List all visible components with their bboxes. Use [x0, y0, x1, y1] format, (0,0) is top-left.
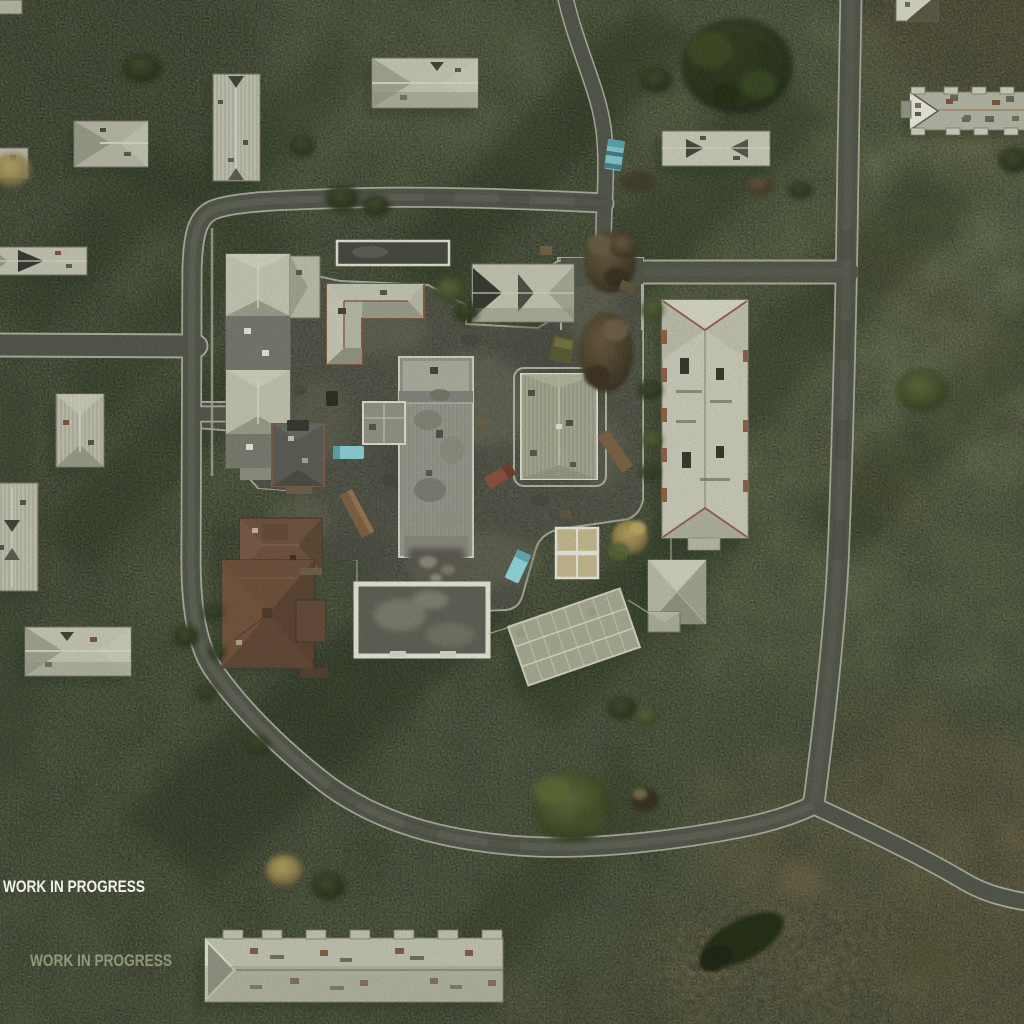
svg-text:WORK IN PROGRESS: WORK IN PROGRESS: [3, 878, 145, 896]
svg-text:WORK IN PROGRESS: WORK IN PROGRESS: [30, 952, 172, 970]
